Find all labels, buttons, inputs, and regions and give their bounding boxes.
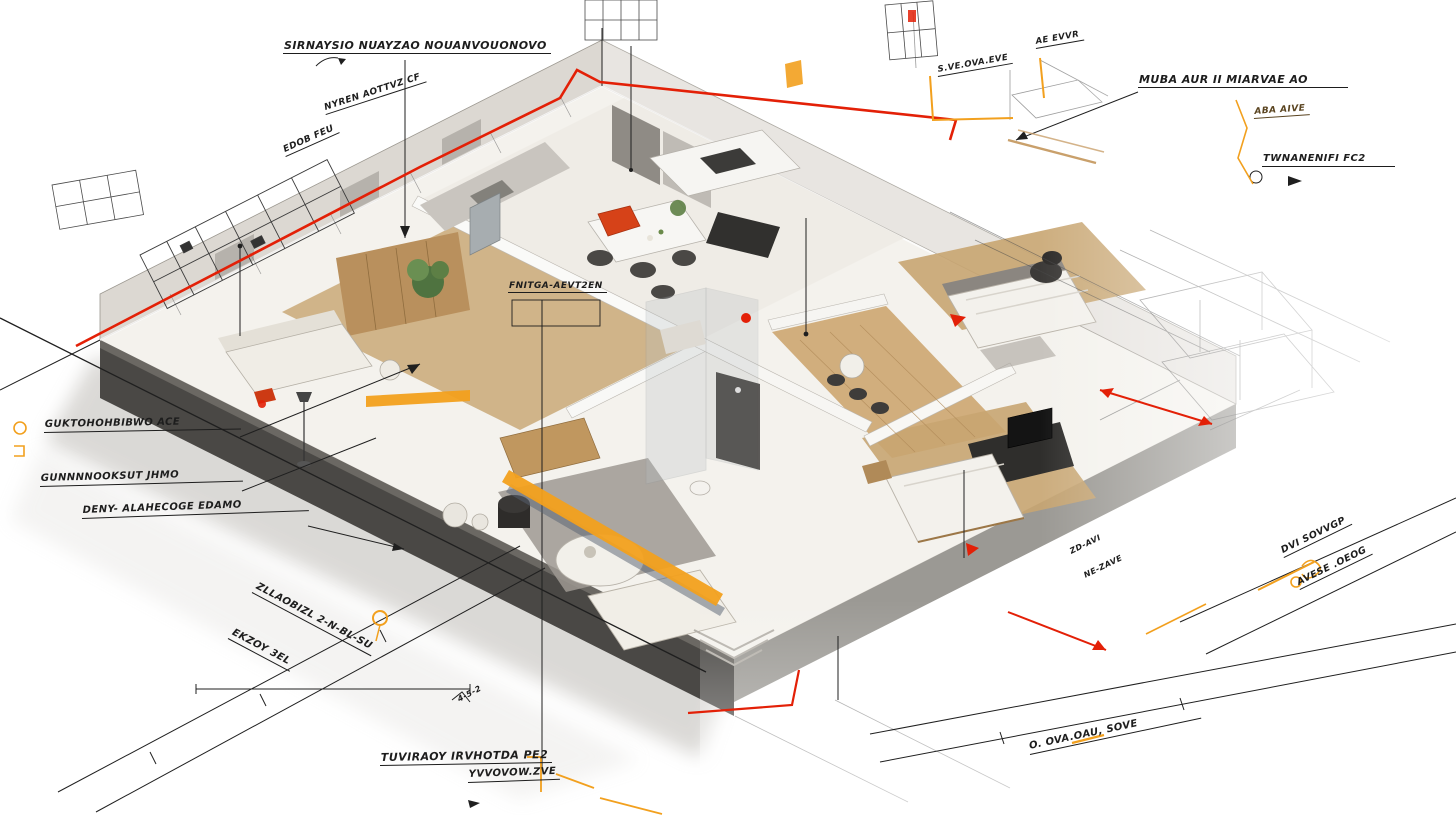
red-dot-marker [258, 400, 266, 408]
sketch-fragment-top-b [885, 1, 938, 60]
red-tag [908, 10, 916, 22]
orange-elbow-top [930, 76, 1013, 120]
bar-stool [849, 388, 867, 400]
red-dot-marker [741, 313, 751, 323]
table-plant [670, 200, 686, 216]
label-top-left-title: SIRNAYSIO NUAYZAO NOUANVOUONOVO [283, 40, 551, 54]
label-right-upper: TWNANENIFI FC2 [1262, 154, 1395, 167]
pen-arrow-icon [338, 58, 346, 65]
sketch-fade-bottom [700, 600, 1456, 816]
label-mid-plan: FNITGA-AEVT2EN [508, 282, 607, 293]
dining-chair [672, 250, 696, 266]
dining-chair [630, 262, 656, 278]
side-table [380, 360, 400, 380]
orange-segment [600, 798, 662, 814]
toilet [690, 481, 710, 495]
bistro-table [840, 354, 864, 378]
dining-chair [587, 250, 613, 266]
tableware [659, 230, 664, 235]
round-table [472, 514, 488, 530]
bar-stool [827, 374, 845, 386]
tableware [647, 235, 653, 241]
plant [431, 261, 449, 279]
blueprint-canvas: SIRNAYSIO NUAYZAO NOUANVOUONOVO NYREN AO… [0, 0, 1456, 816]
floorplan-drawing [0, 0, 1456, 816]
shower [716, 372, 760, 470]
margin-icon [14, 422, 26, 434]
sketch-fragment-left [52, 170, 144, 229]
bar-stool [871, 402, 889, 414]
plant [407, 259, 429, 281]
table-item [584, 546, 596, 558]
orange-roof-patch [785, 60, 803, 88]
sketch-fragment-top-a [585, 0, 657, 40]
shower-head [735, 387, 741, 393]
label-top-right-title: MUBA AUR II MIARVAE AO [1138, 74, 1348, 88]
round-table [443, 503, 467, 527]
margin-icon [14, 446, 24, 456]
glass-partition [646, 288, 706, 484]
pen-arrow-icon [316, 58, 338, 66]
pen-arrow-icon [468, 800, 480, 808]
